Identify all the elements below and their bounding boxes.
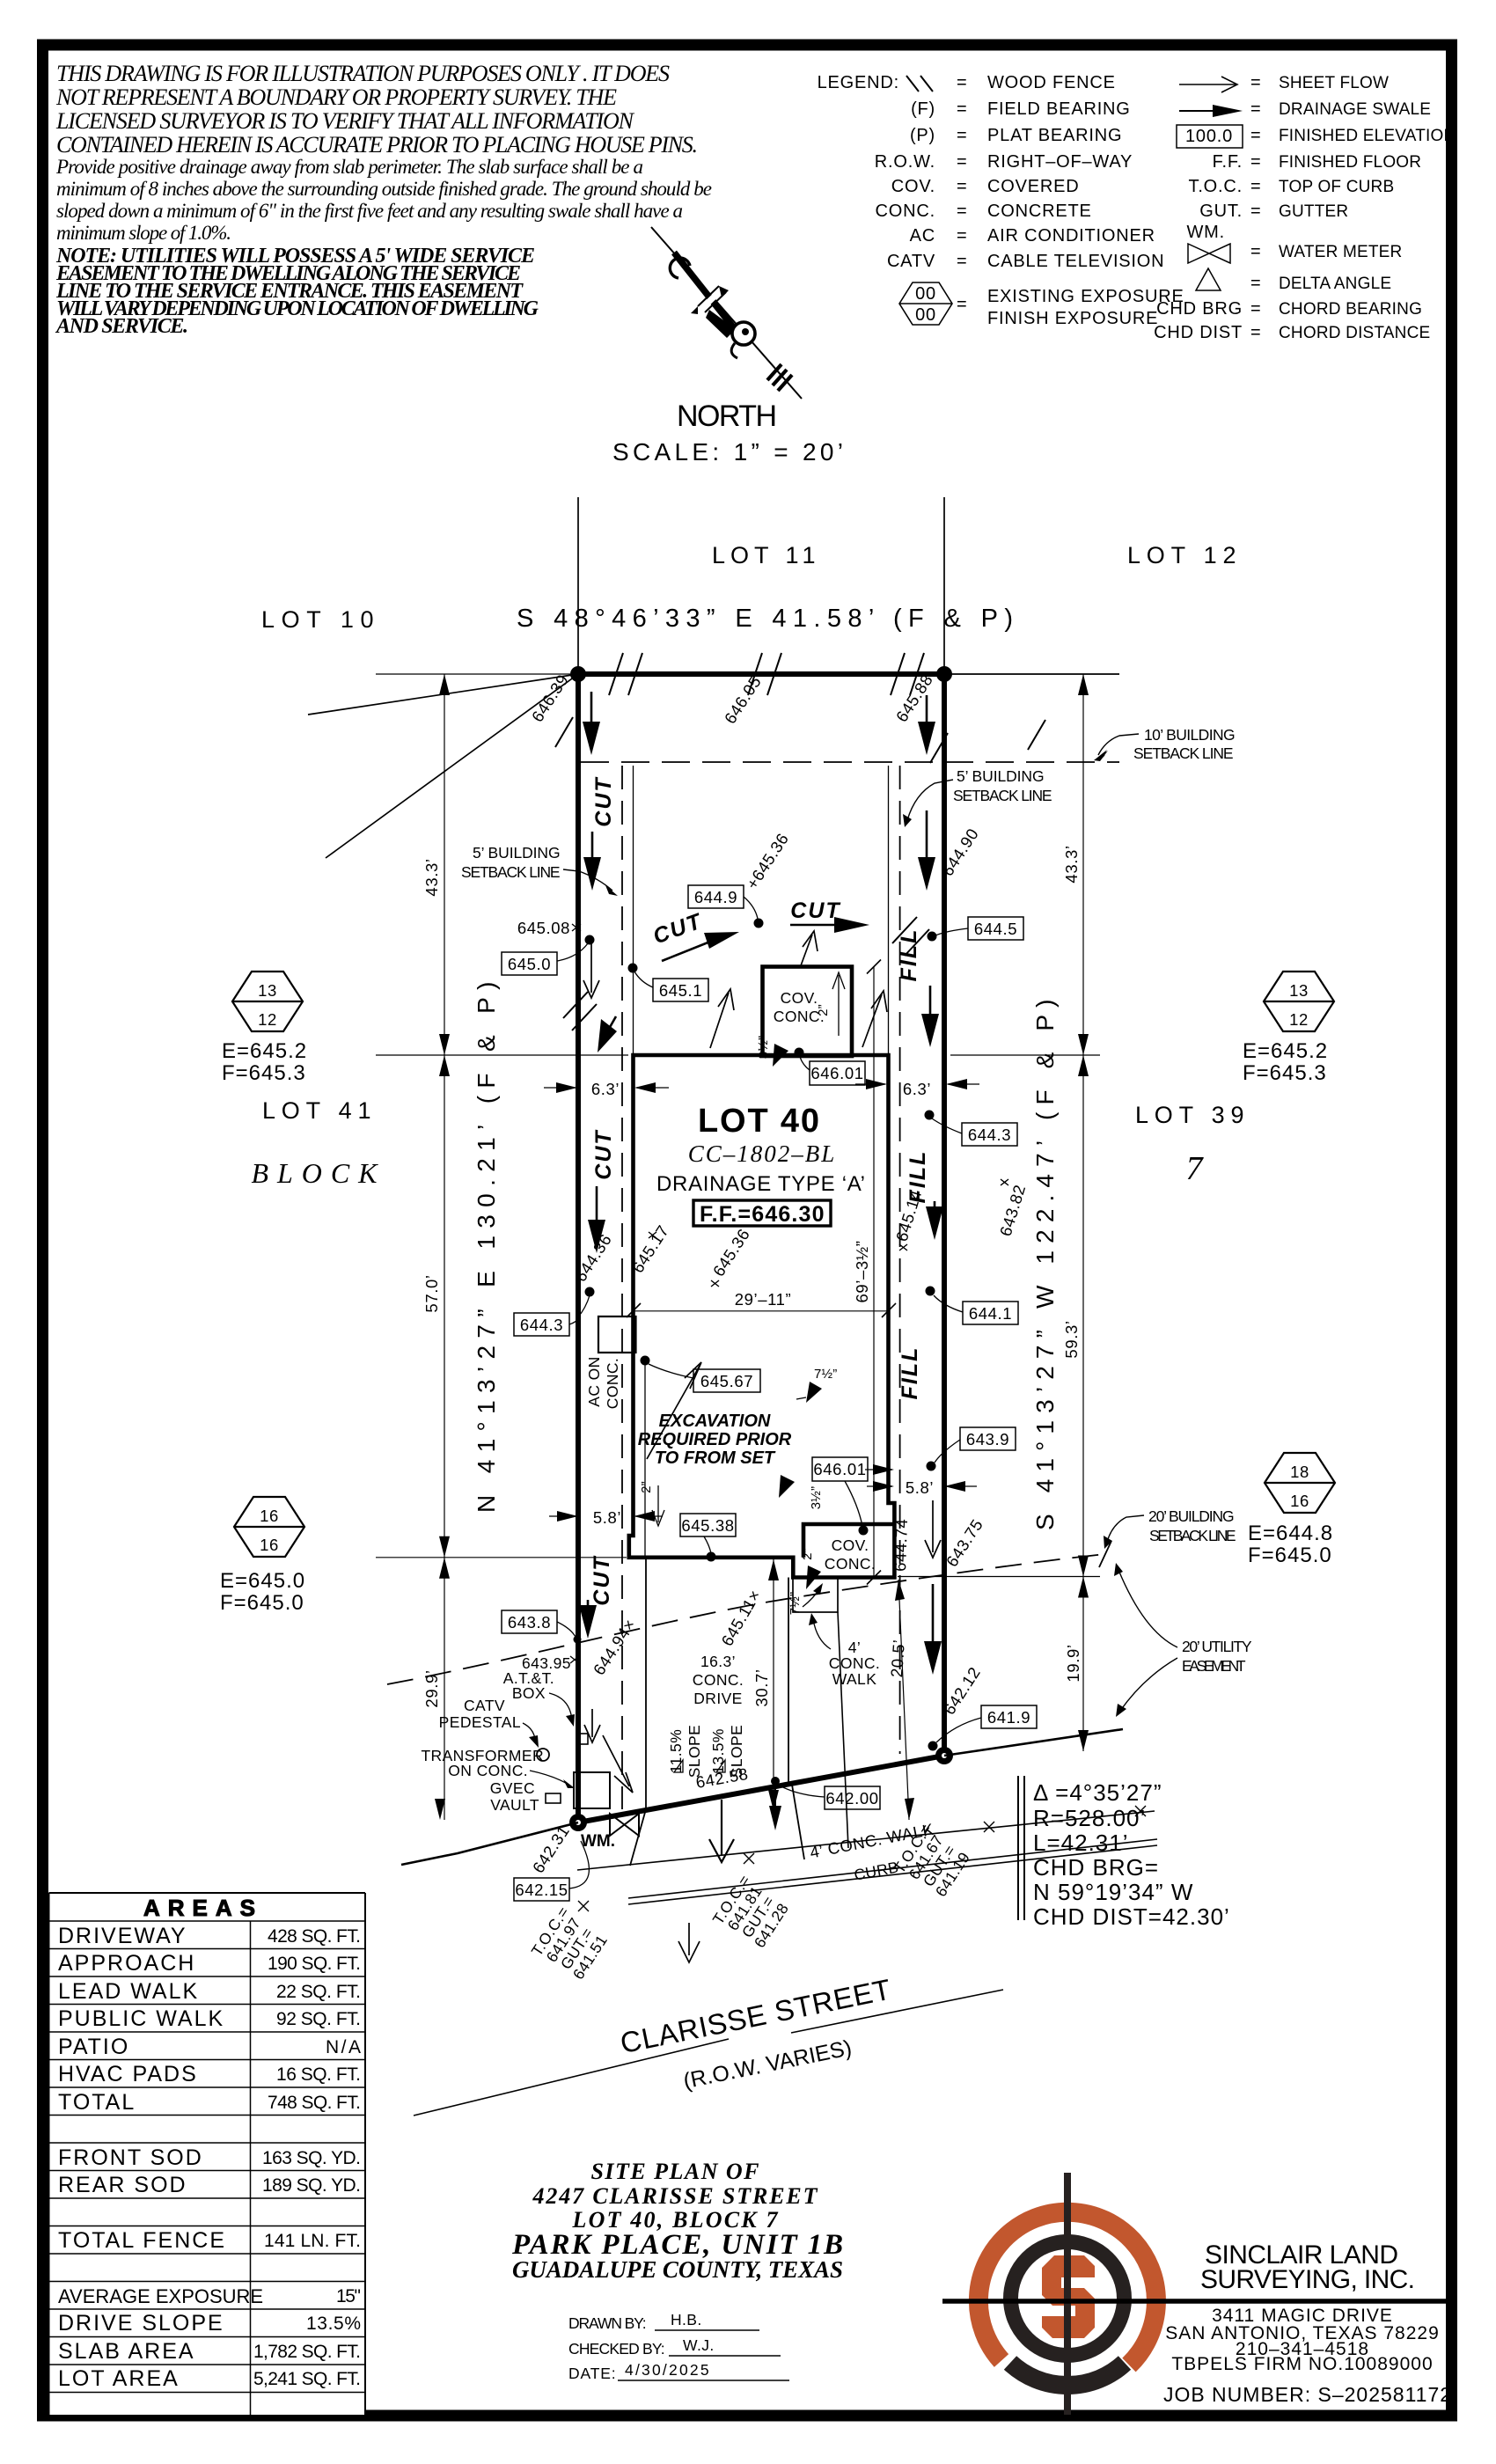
svg-text:SURVEYING, INC.: SURVEYING, INC. <box>1200 2265 1417 2294</box>
svg-text:13: 13 <box>1289 981 1309 1000</box>
svg-text:=: = <box>1250 152 1261 172</box>
svg-text:643.8: 643.8 <box>508 1613 551 1632</box>
svg-text:=: = <box>1250 323 1261 342</box>
svg-text:CATV: CATV <box>464 1697 505 1714</box>
svg-text:W.J.: W.J. <box>683 2336 715 2354</box>
svg-text:CATV: CATV <box>887 252 935 271</box>
svg-text:644.9: 644.9 <box>694 888 737 906</box>
svg-text:DRAWN BY:: DRAWN BY: <box>568 2314 647 2332</box>
svg-text:DRIVE: DRIVE <box>693 1690 742 1707</box>
svg-text:92 SQ. FT.: 92 SQ. FT. <box>276 2009 361 2029</box>
svg-text:5.8’: 5.8’ <box>906 1478 934 1497</box>
svg-text:645.36: 645.36 <box>709 1225 753 1280</box>
svg-text:CHD DIST: CHD DIST <box>1154 323 1243 342</box>
svg-text:1,782 SQ. FT.: 1,782 SQ. FT. <box>253 2342 361 2362</box>
svg-text:R=528.00’: R=528.00’ <box>1033 1805 1146 1831</box>
svg-text:16: 16 <box>260 1536 279 1554</box>
svg-text:CUT: CUT <box>591 1129 616 1180</box>
svg-text:JOB NUMBER: S–202581172: JOB NUMBER: S–202581172 <box>1163 2383 1452 2406</box>
svg-text:LOT AREA: LOT AREA <box>58 2366 180 2391</box>
svg-text:EXISTING EXPOSURE: EXISTING EXPOSURE <box>987 287 1184 306</box>
svg-text:minimum of 8 inches above the: minimum of 8 inches above the surroundin… <box>56 178 712 200</box>
svg-text:N 59°19’34” W: N 59°19’34” W <box>1033 1879 1193 1905</box>
svg-text:7½”: 7½” <box>814 1367 837 1382</box>
svg-text:DRIVEWAY: DRIVEWAY <box>58 1924 187 1948</box>
svg-text:sloped down a minimum of 6" in: sloped down a minimum of 6" in the first… <box>56 200 683 222</box>
svg-text:SITE PLAN OF: SITE PLAN OF <box>591 2159 759 2184</box>
svg-text:CHD BRG=: CHD BRG= <box>1033 1854 1159 1881</box>
svg-text:2”: 2” <box>639 1481 654 1493</box>
svg-text:2”: 2” <box>800 1548 815 1560</box>
svg-text:29.9’: 29.9’ <box>422 1669 441 1707</box>
svg-text:DRAINAGE TYPE ‘A’: DRAINAGE TYPE ‘A’ <box>656 1172 866 1196</box>
svg-text:5,241 SQ. FT.: 5,241 SQ. FT. <box>253 2369 361 2389</box>
svg-text:S 41°13’27” W 122.47’ (F & P): S 41°13’27” W 122.47’ (F & P) <box>1031 995 1059 1530</box>
svg-text:643.9: 643.9 <box>966 1430 1009 1448</box>
svg-text:=: = <box>1250 242 1261 261</box>
svg-text:GVEC: GVEC <box>490 1779 535 1797</box>
svg-text:29’–11”: 29’–11” <box>735 1290 792 1309</box>
svg-text:5’ BUILDING: 5’ BUILDING <box>473 844 561 862</box>
svg-text:CHD DIST=42.30’: CHD DIST=42.30’ <box>1033 1903 1230 1930</box>
svg-text:AIR CONDITIONER: AIR CONDITIONER <box>987 226 1155 246</box>
svg-text:RIGHT–OF–WAY: RIGHT–OF–WAY <box>987 152 1133 172</box>
svg-text:TOP OF CURB: TOP OF CURB <box>1279 178 1394 196</box>
svg-text:FINISH EXPOSURE: FINISH EXPOSURE <box>987 309 1158 328</box>
svg-text:SHEET FLOW: SHEET FLOW <box>1279 74 1389 92</box>
svg-text:TOTAL: TOTAL <box>58 2090 136 2115</box>
svg-text:644.3: 644.3 <box>520 1316 563 1334</box>
svg-text:22 SQ. FT.: 22 SQ. FT. <box>276 1982 361 2002</box>
svg-text:DATE:: DATE: <box>568 2365 616 2382</box>
svg-text:WOOD FENCE: WOOD FENCE <box>987 73 1116 92</box>
svg-text:30.7’: 30.7’ <box>752 1668 771 1706</box>
svg-text:LOT 10: LOT 10 <box>261 606 378 633</box>
svg-text:WM.: WM. <box>581 1832 615 1851</box>
svg-text:FIELD BEARING: FIELD BEARING <box>987 99 1131 119</box>
svg-text:43.3’: 43.3’ <box>422 858 441 896</box>
svg-text:CONC.: CONC. <box>829 1654 880 1672</box>
svg-text:SLOPE: SLOPE <box>686 1725 703 1778</box>
svg-text:=: = <box>957 252 967 271</box>
svg-text:FILL: FILL <box>898 1346 922 1400</box>
svg-text:R.O.W.: R.O.W. <box>875 152 935 172</box>
svg-text:Provide positive drainage away: Provide positive drainage away from slab… <box>55 156 643 178</box>
svg-text:DELTA ANGLE: DELTA ANGLE <box>1279 275 1391 293</box>
svg-text:CONC.: CONC. <box>693 1671 744 1689</box>
svg-text:13.5%: 13.5% <box>709 1728 727 1774</box>
svg-text:CONC.: CONC. <box>825 1555 876 1573</box>
svg-text:6.3’: 6.3’ <box>591 1080 620 1098</box>
svg-text:645.14: 645.14 <box>892 1187 926 1243</box>
svg-text:APPROACH: APPROACH <box>58 1951 195 1976</box>
svg-text:CHECKED BY:: CHECKED BY: <box>568 2340 665 2358</box>
svg-text:645.67: 645.67 <box>700 1372 753 1390</box>
svg-text:CONC.: CONC. <box>604 1358 621 1409</box>
svg-text:10’ BUILDING: 10’ BUILDING <box>1144 726 1236 744</box>
svg-text:645.11×: 645.11× <box>717 1587 764 1649</box>
svg-text:CUT: CUT <box>790 898 841 923</box>
svg-text:LOT 41: LOT 41 <box>262 1097 375 1124</box>
svg-text:LOT 40: LOT 40 <box>698 1103 821 1140</box>
svg-text:642.15: 642.15 <box>515 1881 568 1899</box>
svg-text:19.9’: 19.9’ <box>1064 1644 1082 1682</box>
svg-text:EASEMENT: EASEMENT <box>1182 1657 1246 1675</box>
svg-text:13.5%: 13.5% <box>306 2314 361 2334</box>
svg-text:=: = <box>1250 99 1261 119</box>
svg-text:DRAINAGE SWALE: DRAINAGE SWALE <box>1279 100 1431 119</box>
svg-text:16: 16 <box>260 1507 279 1525</box>
svg-text:LOT 12: LOT 12 <box>1127 542 1240 568</box>
svg-text:ON CONC.: ON CONC. <box>448 1762 528 1779</box>
svg-text:=: = <box>957 202 967 221</box>
svg-text:=: = <box>1250 274 1261 293</box>
svg-text:minimum slope of 1.0%.: minimum slope of 1.0%. <box>56 222 231 244</box>
svg-text:20’ BUILDING: 20’ BUILDING <box>1148 1507 1235 1525</box>
svg-text:EXCAVATION: EXCAVATION <box>659 1412 771 1431</box>
svg-text:=: = <box>1250 126 1261 145</box>
svg-text:CABLE TELEVISION: CABLE TELEVISION <box>987 252 1164 271</box>
svg-text:E=645.2: E=645.2 <box>1243 1039 1328 1063</box>
svg-text:E=645.2: E=645.2 <box>222 1039 307 1063</box>
svg-text:REAR SOD: REAR SOD <box>58 2173 187 2197</box>
svg-text:N/A: N/A <box>326 2037 361 2057</box>
svg-text:4’: 4’ <box>848 1639 861 1656</box>
svg-text:TOTAL FENCE: TOTAL FENCE <box>58 2228 226 2253</box>
svg-text:644.74: 644.74 <box>891 1518 911 1572</box>
svg-text:644.1: 644.1 <box>969 1304 1012 1323</box>
svg-text:43.3’: 43.3’ <box>1062 845 1081 883</box>
svg-text:SETBACK LINE: SETBACK LINE <box>953 787 1052 804</box>
svg-text:SLAB AREA: SLAB AREA <box>58 2339 195 2364</box>
svg-text:GUTTER: GUTTER <box>1279 202 1348 221</box>
svg-text:WALK: WALK <box>832 1670 877 1688</box>
svg-text:645.38: 645.38 <box>681 1516 734 1535</box>
svg-text:646.01: 646.01 <box>810 1064 863 1082</box>
svg-text:L=42.31’: L=42.31’ <box>1033 1830 1128 1856</box>
svg-text:(P): (P) <box>910 126 935 145</box>
svg-text:Δ =4°35’27”: Δ =4°35’27” <box>1033 1779 1162 1806</box>
svg-text:F=645.0: F=645.0 <box>220 1591 304 1615</box>
svg-text:645.88: 645.88 <box>892 671 936 725</box>
svg-text:CONC.: CONC. <box>876 202 935 221</box>
svg-text:5.8’: 5.8’ <box>593 1508 621 1527</box>
svg-text:00: 00 <box>915 305 936 325</box>
svg-text:645.0: 645.0 <box>508 955 551 973</box>
svg-text:AC: AC <box>910 226 935 246</box>
svg-text:E=645.0: E=645.0 <box>220 1569 305 1593</box>
svg-text:SETBACK LINE: SETBACK LINE <box>461 863 561 881</box>
svg-text:13: 13 <box>258 981 277 1000</box>
svg-text:BOX: BOX <box>512 1684 546 1702</box>
svg-text:DRIVE SLOPE: DRIVE SLOPE <box>58 2311 224 2336</box>
svg-text:645.1: 645.1 <box>659 981 702 1000</box>
svg-text:T.O.C.: T.O.C. <box>1189 177 1243 196</box>
svg-text:THIS DRAWING IS FOR ILLUSTRATI: THIS DRAWING IS FOR ILLUSTRATION PURPOSE… <box>56 61 670 86</box>
svg-text:LEGEND:: LEGEND: <box>818 73 899 92</box>
svg-text:7½”: 7½” <box>788 1592 803 1615</box>
svg-text:=: = <box>1250 299 1261 319</box>
svg-text:=: = <box>1250 202 1261 221</box>
svg-text:3½”: 3½” <box>756 1036 771 1059</box>
svg-text:4/30/2025: 4/30/2025 <box>625 2361 709 2379</box>
svg-text:20.5’: 20.5’ <box>887 1639 908 1677</box>
svg-text:=: = <box>957 152 967 172</box>
svg-text:CUT: CUT <box>650 908 707 949</box>
svg-text:WATER METER: WATER METER <box>1279 243 1402 261</box>
svg-text:PATIO: PATIO <box>58 2035 129 2059</box>
svg-text:BLOCK: BLOCK <box>252 1157 379 1189</box>
svg-text:SLOPE: SLOPE <box>728 1725 745 1778</box>
svg-text:=: = <box>1250 177 1261 196</box>
svg-text:PEDESTAL: PEDESTAL <box>439 1713 521 1731</box>
svg-text:=: = <box>957 226 967 246</box>
svg-text:CONCRETE: CONCRETE <box>987 202 1092 221</box>
svg-text:00: 00 <box>915 284 936 304</box>
svg-text:F=645.0: F=645.0 <box>1248 1544 1332 1567</box>
svg-text:LOT 11: LOT 11 <box>712 542 819 568</box>
svg-text:3½”: 3½” <box>809 1486 824 1509</box>
svg-text:=: = <box>957 126 967 145</box>
svg-text:VAULT: VAULT <box>490 1796 539 1814</box>
svg-text:COV.: COV. <box>781 989 818 1007</box>
svg-text:=: = <box>957 177 967 196</box>
svg-text:S 48°46’33” E 41.58’ (F & P): S 48°46’33” E 41.58’ (F & P) <box>517 605 1015 633</box>
svg-text:COV.: COV. <box>832 1536 869 1554</box>
svg-text:=: = <box>1250 73 1261 92</box>
svg-text:141 LN. FT.: 141 LN. FT. <box>264 2231 361 2251</box>
svg-text:190 SQ. FT.: 190 SQ. FT. <box>268 1954 361 1974</box>
svg-text:645.08: 645.08 <box>517 919 570 937</box>
svg-text:NOT REPRESENT A BOUNDARY OR PR: NOT REPRESENT A BOUNDARY OR PROPERTY SUR… <box>55 84 617 110</box>
svg-text:AREAS: AREAS <box>143 1895 263 1921</box>
svg-text:LEAD WALK: LEAD WALK <box>58 1979 199 2004</box>
svg-text:GUT.: GUT. <box>1199 202 1243 221</box>
svg-text:LICENSED SURVEYOR IS TO VERIFY: LICENSED SURVEYOR IS TO VERIFY THAT ALL … <box>55 108 635 134</box>
svg-text:PUBLIC WALK: PUBLIC WALK <box>58 2006 224 2031</box>
svg-text:GUADALUPE COUNTY, TEXAS: GUADALUPE COUNTY, TEXAS <box>512 2256 843 2283</box>
svg-text:2”: 2” <box>816 1004 831 1016</box>
svg-text:641.9: 641.9 <box>987 1708 1030 1727</box>
svg-text:LOT 39: LOT 39 <box>1135 1102 1248 1128</box>
svg-text:TBPELS FIRM NO.10089000: TBPELS FIRM NO.10089000 <box>1171 2354 1433 2374</box>
svg-text:12: 12 <box>1289 1010 1309 1029</box>
svg-text:189 SQ. YD.: 189 SQ. YD. <box>262 2175 361 2196</box>
svg-text:69’–3½”: 69’–3½” <box>853 1240 871 1302</box>
svg-text:644.3: 644.3 <box>968 1126 1011 1144</box>
svg-text:7: 7 <box>1186 1150 1205 1187</box>
svg-text:646.01: 646.01 <box>813 1460 866 1478</box>
svg-text:643.82: 643.82 <box>996 1182 1030 1238</box>
svg-text:F.F.: F.F. <box>1213 152 1243 172</box>
svg-text:F.F.=646.30: F.F.=646.30 <box>700 1202 825 1227</box>
svg-text:18: 18 <box>1290 1463 1309 1481</box>
svg-text:59.3’: 59.3’ <box>1062 1320 1081 1358</box>
svg-text:AVERAGE EXPOSURE: AVERAGE EXPOSURE <box>58 2285 263 2307</box>
svg-text:E=644.8: E=644.8 <box>1248 1522 1333 1545</box>
svg-text:646.05: 646.05 <box>721 672 765 727</box>
svg-text:643.75: 643.75 <box>942 1515 986 1570</box>
svg-text:=: = <box>957 73 967 92</box>
svg-text:NORTH: NORTH <box>677 400 781 433</box>
svg-text:FINISHED ELEVATION: FINISHED ELEVATION <box>1279 127 1456 145</box>
svg-text:HVAC PADS: HVAC PADS <box>58 2062 198 2086</box>
svg-text:CUT: CUT <box>591 776 616 827</box>
svg-text:644.94×: 644.94× <box>590 1616 640 1678</box>
svg-text:AND SERVICE.: AND SERVICE. <box>55 315 188 338</box>
svg-text:CLARISSE STREET: CLARISSE STREET <box>618 1972 896 2059</box>
svg-text:6.3’: 6.3’ <box>903 1080 931 1098</box>
svg-text:AC ON: AC ON <box>585 1356 603 1406</box>
svg-text:COV.: COV. <box>891 177 935 196</box>
svg-text:F=645.3: F=645.3 <box>222 1061 306 1085</box>
svg-text:SETBACK LINE: SETBACK LINE <box>1149 1527 1236 1544</box>
svg-text:=: = <box>957 99 967 119</box>
svg-text:F=645.3: F=645.3 <box>1243 1061 1327 1085</box>
svg-text:4247 CLARISSE STREET: 4247 CLARISSE STREET <box>532 2183 818 2209</box>
svg-text:WM.: WM. <box>1187 223 1226 242</box>
svg-text:FRONT SOD: FRONT SOD <box>58 2145 203 2170</box>
svg-text:642.00: 642.00 <box>825 1789 878 1808</box>
svg-text:+645.36: +645.36 <box>743 830 793 892</box>
svg-text:CC–1802–BL: CC–1802–BL <box>688 1140 837 1167</box>
svg-text:20’ UTILITY: 20’ UTILITY <box>1182 1638 1252 1655</box>
svg-text:FILL: FILL <box>897 928 921 982</box>
svg-text:428 SQ. FT.: 428 SQ. FT. <box>268 1926 361 1947</box>
svg-text:H.B.: H.B. <box>671 2311 702 2328</box>
svg-text:FINISHED FLOOR: FINISHED FLOOR <box>1279 153 1421 172</box>
svg-text:100.0: 100.0 <box>1185 127 1233 146</box>
svg-text:5’ BUILDING: 5’ BUILDING <box>957 767 1045 785</box>
svg-text:16.3’: 16.3’ <box>700 1653 736 1670</box>
svg-text:COVERED: COVERED <box>987 177 1080 196</box>
svg-text:CHORD DISTANCE: CHORD DISTANCE <box>1279 324 1430 342</box>
svg-text:11.5%: 11.5% <box>667 1729 685 1773</box>
svg-text:TO FROM SET: TO FROM SET <box>655 1448 776 1468</box>
svg-text:57.0’: 57.0’ <box>422 1274 441 1312</box>
svg-text:PLAT BEARING: PLAT BEARING <box>987 126 1122 145</box>
svg-text:748 SQ. FT.: 748 SQ. FT. <box>268 2093 361 2113</box>
svg-text:16 SQ. FT.: 16 SQ. FT. <box>276 2064 361 2085</box>
svg-text:N 41°13’27” E 130.21’ (F & P): N 41°13’27” E 130.21’ (F & P) <box>473 978 500 1513</box>
svg-text:15": 15" <box>336 2286 361 2306</box>
svg-text:SCALE: 1” = 20’: SCALE: 1” = 20’ <box>612 438 845 466</box>
svg-text:CUT: CUT <box>590 1555 614 1606</box>
svg-text:12: 12 <box>258 1010 277 1029</box>
svg-text:=: = <box>957 295 967 314</box>
svg-text:CHORD BEARING: CHORD BEARING <box>1279 300 1422 319</box>
svg-text:(F): (F) <box>911 99 935 119</box>
svg-text:644.5: 644.5 <box>974 920 1017 938</box>
svg-text:643.95: 643.95 <box>522 1654 571 1672</box>
svg-text:CONTAINED HEREIN IS ACCURATE P: CONTAINED HEREIN IS ACCURATE PRIOR TO PL… <box>56 132 698 158</box>
svg-text:16: 16 <box>1290 1492 1309 1510</box>
svg-text:SETBACK LINE: SETBACK LINE <box>1133 744 1234 762</box>
svg-text:CHD BRG: CHD BRG <box>1156 299 1243 319</box>
svg-text:163 SQ. YD.: 163 SQ. YD. <box>262 2148 361 2168</box>
